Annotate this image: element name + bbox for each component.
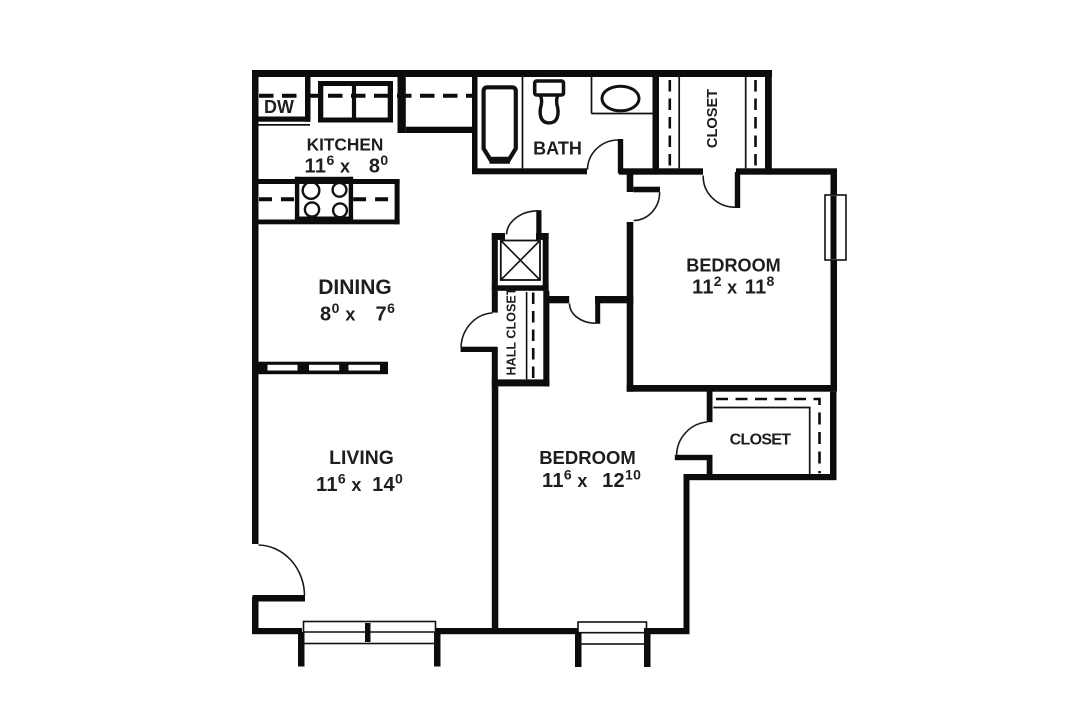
svg-text:DW: DW <box>264 97 294 117</box>
svg-text:116 x 140: 116 x 140 <box>316 471 403 497</box>
svg-text:KITCHEN: KITCHEN <box>307 134 384 154</box>
svg-text:HALL CLOSET: HALL CLOSET <box>505 287 519 375</box>
svg-text:BATH: BATH <box>533 139 582 159</box>
svg-text:BEDROOM: BEDROOM <box>539 447 636 468</box>
svg-text:DINING: DINING <box>318 276 392 299</box>
svg-text:CLOSET: CLOSET <box>730 432 792 449</box>
svg-text:80 x 76: 80 x 76 <box>320 300 395 326</box>
svg-text:116 x 80: 116 x 80 <box>305 152 389 178</box>
svg-text:CLOSET: CLOSET <box>705 89 721 148</box>
svg-text:112 x 118: 112 x 118 <box>692 273 775 299</box>
svg-text:LIVING: LIVING <box>329 447 394 469</box>
